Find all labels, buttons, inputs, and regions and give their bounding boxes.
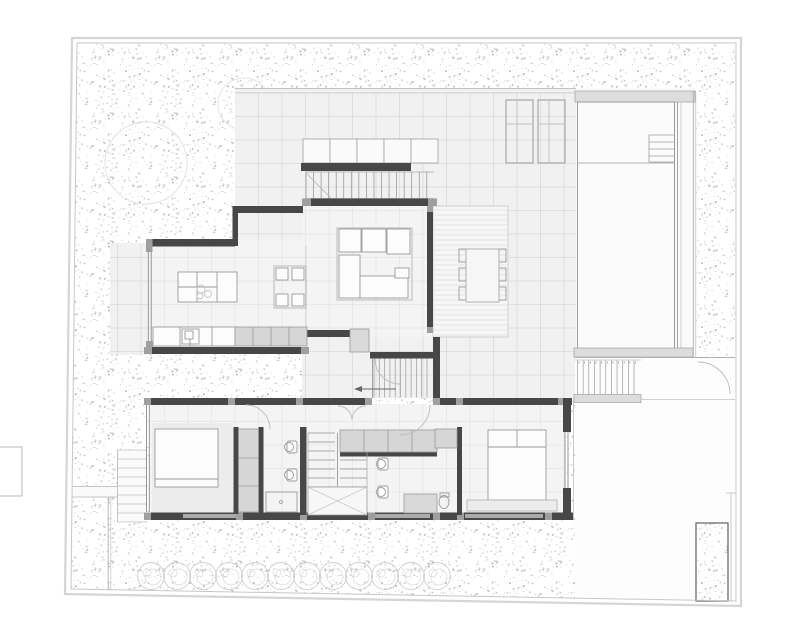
living-floor bbox=[303, 206, 433, 337]
south-glazing bbox=[375, 514, 430, 518]
kitchen-west-cap-s bbox=[146, 341, 153, 347]
driveway bbox=[574, 357, 736, 601]
dining-chair bbox=[292, 294, 304, 306]
counter-white-run bbox=[153, 327, 235, 346]
closet-row-edge bbox=[340, 452, 437, 457]
kitchen-south-cap-w bbox=[144, 347, 152, 354]
stair-south-cap-w bbox=[302, 199, 311, 207]
outdoor-dining bbox=[459, 249, 506, 302]
kitchen-south-cap-e bbox=[301, 347, 309, 354]
dining-chair bbox=[276, 294, 288, 306]
bed-2-bench bbox=[467, 500, 557, 511]
entry-stair-east-wall bbox=[433, 337, 440, 407]
terrace-left-arm bbox=[110, 243, 147, 355]
armchair bbox=[387, 229, 410, 254]
living-north-wall bbox=[235, 206, 303, 213]
entry-stair-top-band bbox=[370, 352, 433, 359]
south-glazing bbox=[183, 514, 236, 518]
south-glazing bbox=[465, 514, 543, 518]
north-cap bbox=[228, 398, 235, 405]
north-cap bbox=[296, 398, 303, 405]
wardrobe1-wall-w bbox=[234, 427, 239, 514]
bath2-shower bbox=[404, 494, 437, 513]
house-lower-volume bbox=[144, 398, 574, 520]
wardrobe1 bbox=[239, 429, 259, 512]
mid-garden-stipple bbox=[235, 354, 302, 398]
mid-garden-patch bbox=[235, 354, 302, 398]
stair-wall bbox=[300, 427, 307, 515]
timber-deck bbox=[433, 206, 508, 337]
lower-east-wall-n bbox=[563, 398, 571, 432]
south-cap bbox=[368, 513, 375, 521]
living-east-cap-s bbox=[427, 327, 433, 333]
kitchen-north-cap bbox=[146, 239, 153, 247]
sofa-bottom-run bbox=[360, 276, 408, 298]
dining-chair bbox=[276, 268, 288, 280]
lower-east-wall-s bbox=[563, 488, 571, 520]
stair-landing-bar bbox=[574, 395, 641, 403]
planter bbox=[696, 523, 728, 601]
kitchen-west-cap-n bbox=[146, 246, 153, 252]
path-to-boundary bbox=[72, 486, 117, 497]
dining-chair bbox=[292, 268, 304, 280]
lower-north-wall-east bbox=[433, 398, 572, 405]
sofa-left-arm bbox=[339, 255, 360, 298]
floor-plan-drawing bbox=[0, 0, 800, 640]
south-cap bbox=[433, 513, 440, 521]
kitchen-north-wall bbox=[146, 239, 235, 247]
lower-north-wall-west bbox=[144, 398, 372, 405]
planter-soil bbox=[696, 523, 728, 601]
pool-basin bbox=[578, 102, 675, 350]
north-cap bbox=[456, 398, 463, 405]
bed-1 bbox=[155, 429, 218, 487]
pool-zone bbox=[574, 88, 696, 357]
kitchen-south-wall bbox=[144, 347, 309, 354]
stair-south-cap-e bbox=[428, 199, 437, 207]
south-cap bbox=[144, 513, 151, 521]
kitchen-counter bbox=[153, 327, 307, 346]
floor-plan-canvas bbox=[0, 0, 800, 640]
north-cap bbox=[365, 398, 372, 405]
outdoor-table bbox=[466, 249, 499, 302]
stair-south-band bbox=[302, 199, 437, 207]
offsite-structure bbox=[0, 447, 22, 496]
bath2-cabinet bbox=[435, 429, 457, 448]
pool-north-deck-bar bbox=[575, 91, 695, 102]
pool-south-deck-bar bbox=[574, 348, 693, 357]
sofa-module bbox=[362, 229, 386, 252]
side-table bbox=[395, 268, 409, 278]
living-east-wall bbox=[427, 206, 433, 333]
living-east-cap-n bbox=[427, 206, 433, 212]
stair-north-band bbox=[301, 163, 411, 171]
living-south-wall bbox=[301, 330, 352, 337]
bath2-bed2-wall bbox=[457, 427, 462, 515]
closet-row bbox=[340, 430, 437, 452]
pergola-row bbox=[303, 139, 438, 163]
entry-pillar bbox=[350, 329, 369, 352]
bedroom-1 bbox=[155, 429, 218, 487]
wardrobe1-wall-e bbox=[259, 427, 264, 514]
south-cap bbox=[545, 513, 552, 521]
sofa-module bbox=[339, 229, 361, 252]
north-cap bbox=[144, 398, 151, 405]
north-cap bbox=[433, 398, 440, 405]
